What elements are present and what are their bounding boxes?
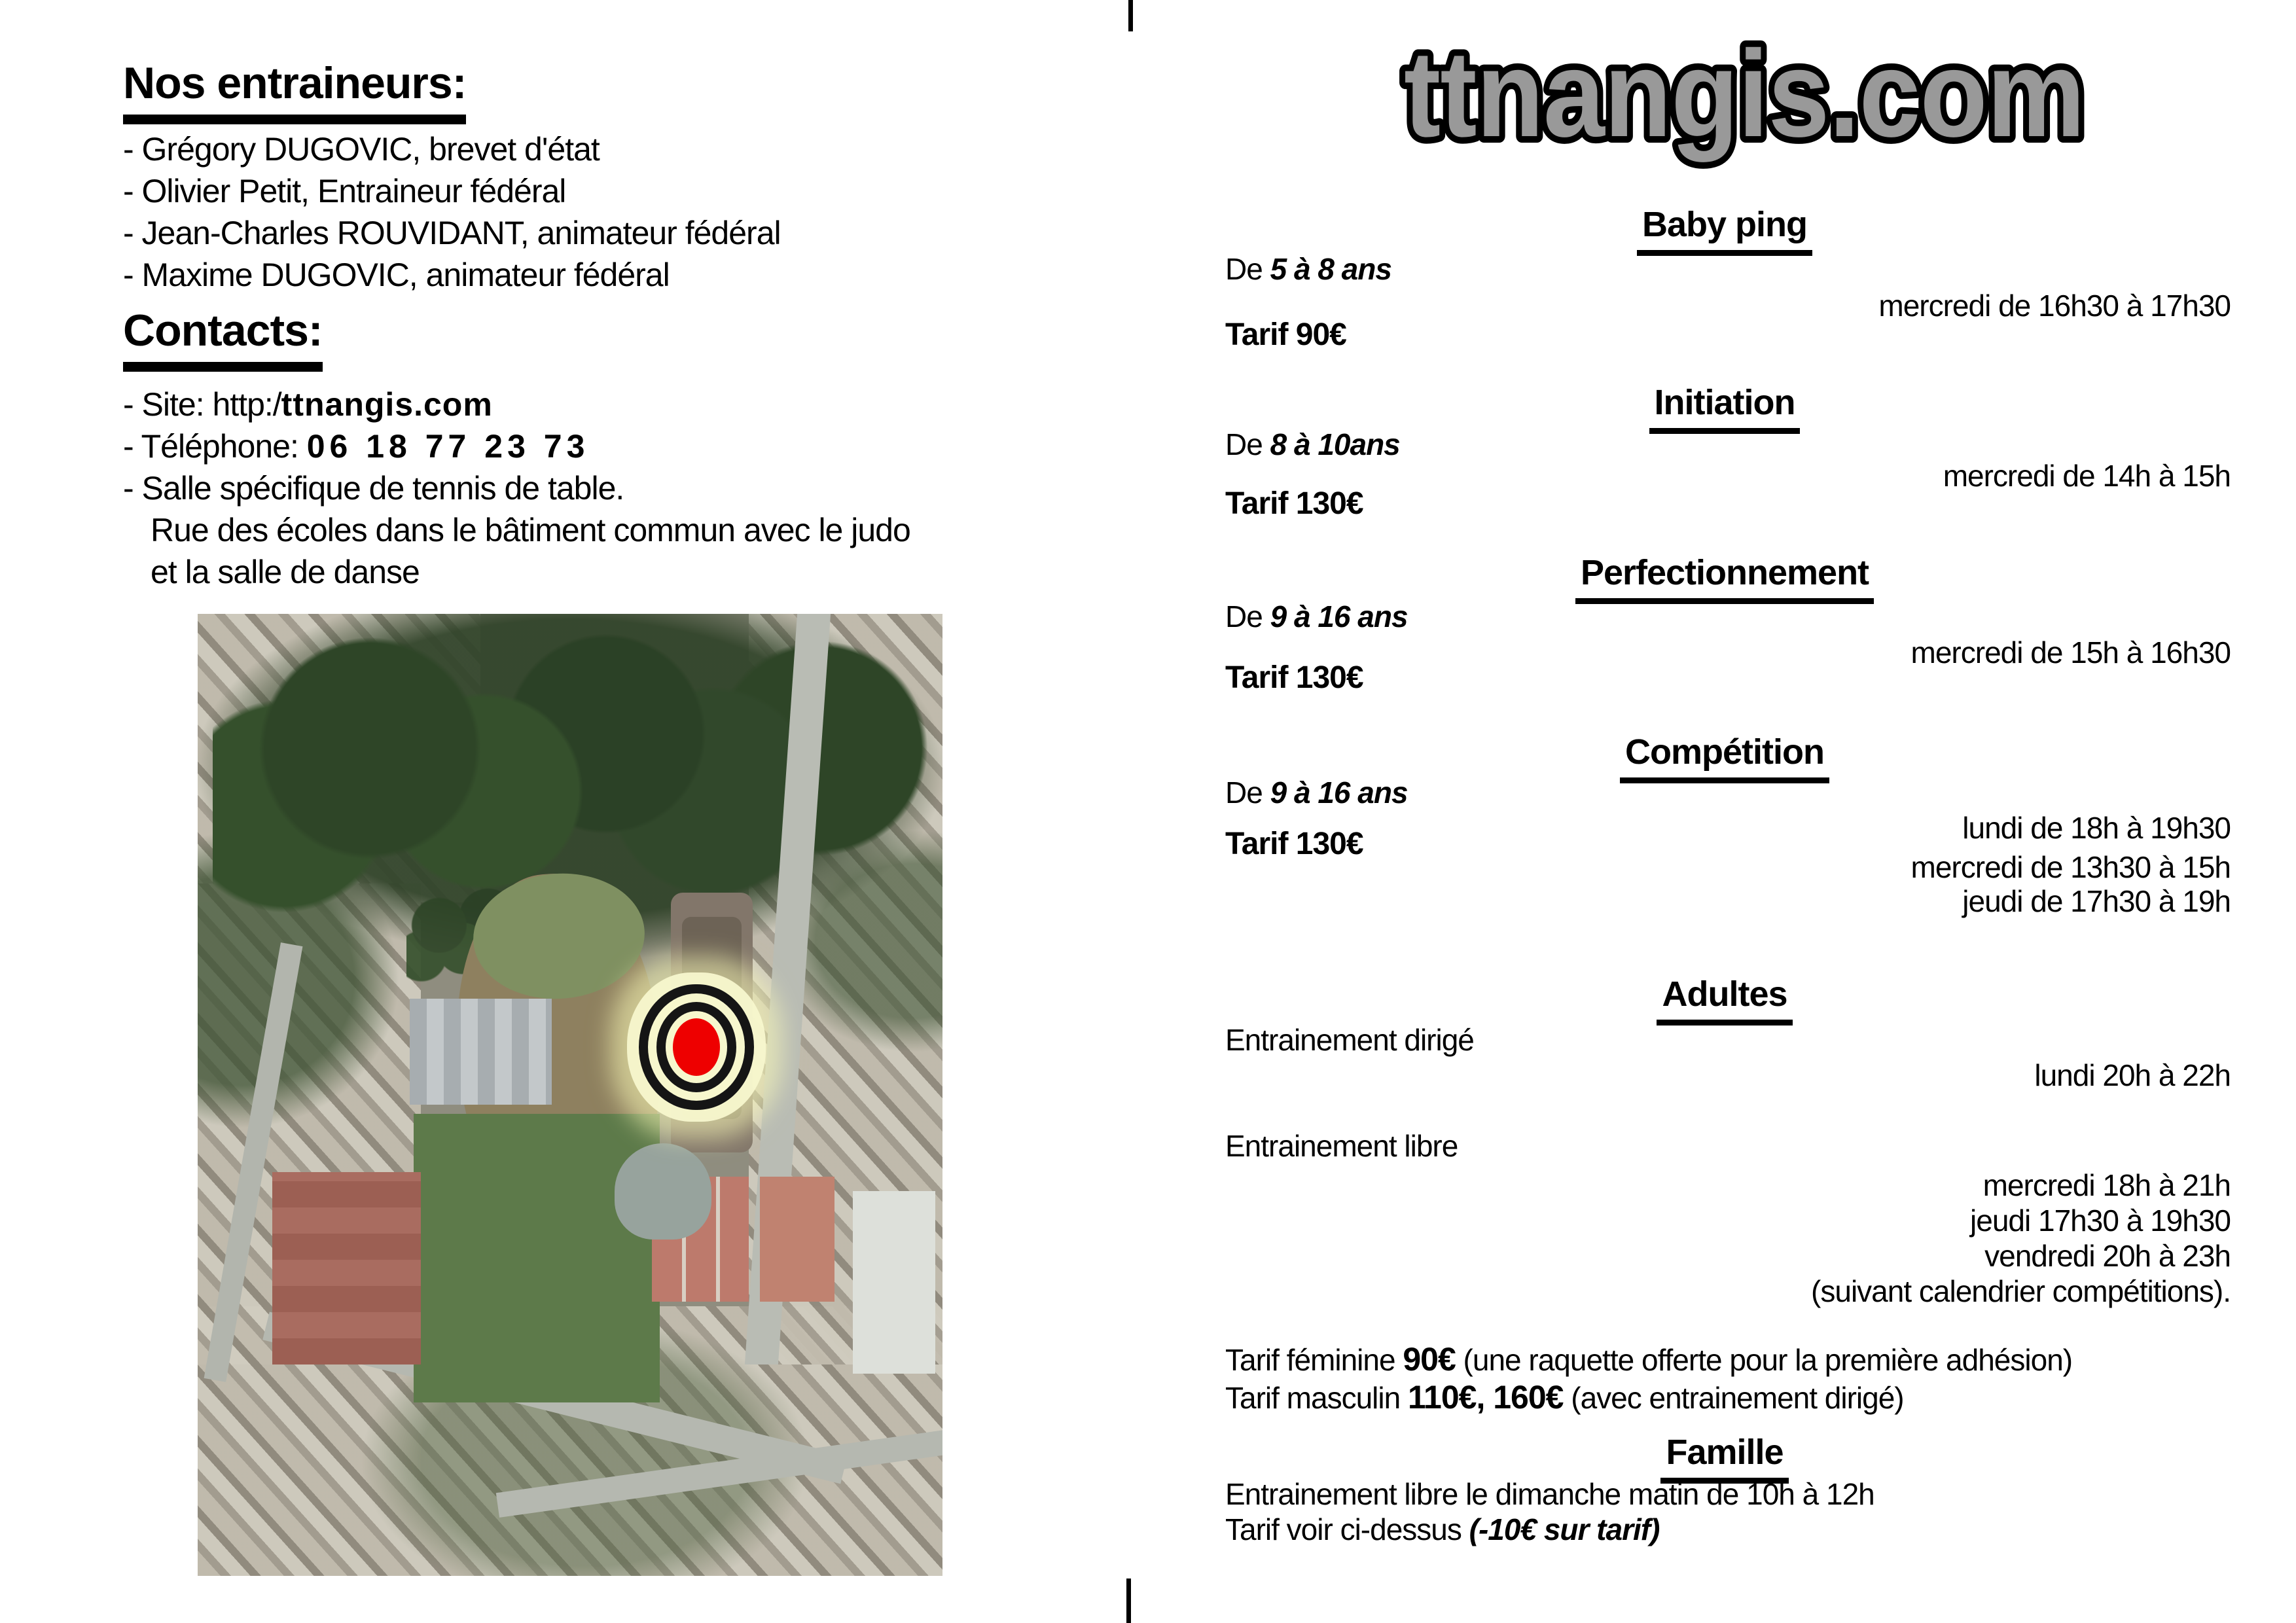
famille-line2: Tarif voir ci-dessus (-10€ sur tarif) (1225, 1512, 1659, 1547)
site-logo: ttnangis.com (1384, 17, 2104, 174)
competition-time: mercredi de 13h30 à 15h (1217, 849, 2231, 885)
map-stadium-infield (682, 917, 742, 1119)
location-marker-icon (673, 1018, 720, 1076)
section-title-perfectionnement: Perfectionnement (1217, 552, 2232, 604)
map-red-track (272, 1172, 422, 1364)
initiation-age: De 8 à 10ans (1225, 427, 1400, 462)
site-url[interactable]: ttnangis.com (281, 386, 493, 423)
contacts-heading: Contacts: (123, 305, 323, 372)
perfectionnement-age: De 9 à 16 ans (1225, 599, 1408, 634)
map-tennis-courts (760, 1177, 834, 1302)
phone-number: 06 18 77 23 73 (307, 428, 590, 465)
initiation-time: mercredi de 14h à 15h (1217, 458, 2231, 493)
tarif-masculin-value: 110€, 160€ (1408, 1379, 1564, 1416)
contact-phone: - Téléphone: 06 18 77 23 73 (123, 425, 910, 467)
contact-site: - Site: http:/ttnangis.com (123, 383, 910, 425)
trainer-item: - Olivier Petit, Entraineur fédéral (123, 170, 781, 212)
tarif-masculin-line: Tarif masculin 110€, 160€ (avec entraine… (1225, 1378, 1904, 1416)
fold-mark-bottom (1126, 1578, 1131, 1623)
contacts-heading-text: Contacts: (123, 305, 323, 372)
contacts-list: - Site: http:/ttnangis.com - Téléphone: … (123, 383, 910, 593)
tarif-feminine-line: Tarif féminine 90€ (une raquette offerte… (1225, 1340, 2072, 1378)
famille-line1: Entrainement libre le dimanche matin de … (1225, 1476, 1874, 1512)
competition-time: lundi de 18h à 19h30 (1217, 810, 2231, 846)
competition-time: jeudi de 17h30 à 19h (1217, 883, 2231, 919)
famille-discount: (-10€ sur tarif) (1469, 1512, 1660, 1546)
baby-tarif: Tarif 90€ (1225, 317, 1346, 353)
trainers-heading-text: Nos entraineurs: (123, 58, 466, 124)
adultes-libre-time: vendredi 20h à 23h (1217, 1238, 2231, 1274)
adultes-libre-label: Entrainement libre (1225, 1128, 1458, 1164)
perfectionnement-tarif: Tarif 130€ (1225, 660, 1363, 696)
trainers-heading: Nos entraineurs: (123, 58, 466, 124)
satellite-map (198, 614, 942, 1576)
flyer-page: { "left": { "trainers": { "heading": "No… (0, 0, 2296, 1623)
tarif-feminine-value: 90€ (1403, 1341, 1455, 1378)
contact-hall-line2: Rue des écoles dans le bâtiment commun a… (123, 509, 910, 551)
logo-svg: ttnangis.com (1384, 17, 2104, 174)
adultes-libre-note: (suivant calendrier compétitions). (1217, 1274, 2231, 1309)
map-green-pitch (414, 1114, 660, 1402)
map-white-building (853, 1191, 935, 1374)
competition-age: De 9 à 16 ans (1225, 775, 1408, 810)
map-gym-building (410, 999, 551, 1105)
contact-hall-line1: - Salle spécifique de tennis de table. (123, 467, 910, 509)
section-title-baby-ping: Baby ping (1217, 204, 2232, 256)
logo-text: ttnangis.com (1404, 25, 2085, 162)
perfectionnement-time: mercredi de 15h à 16h30 (1217, 635, 2231, 670)
adultes-dirige-label: Entrainement dirigé (1225, 1022, 1474, 1058)
section-title-adultes: Adultes (1217, 974, 2232, 1026)
trainer-item: - Jean-Charles ROUVIDANT, animateur fédé… (123, 212, 781, 254)
adultes-libre-time: mercredi 18h à 21h (1217, 1168, 2231, 1203)
initiation-tarif: Tarif 130€ (1225, 486, 1363, 522)
baby-time: mercredi de 16h30 à 17h30 (1217, 288, 2231, 323)
adultes-dirige-time: lundi 20h à 22h (1217, 1058, 2231, 1093)
contact-hall-line3: et la salle de danse (123, 551, 910, 593)
adultes-libre-time: jeudi 17h30 à 19h30 (1217, 1203, 2231, 1238)
trainer-item: - Maxime DUGOVIC, animateur fédéral (123, 254, 781, 296)
trainer-item: - Grégory DUGOVIC, brevet d'état (123, 128, 781, 170)
map-dome-building (615, 1143, 711, 1240)
baby-age: De 5 à 8 ans (1225, 251, 1391, 287)
fold-mark-top (1128, 0, 1133, 31)
trainers-list: - Grégory DUGOVIC, brevet d'état - Olivi… (123, 128, 781, 296)
